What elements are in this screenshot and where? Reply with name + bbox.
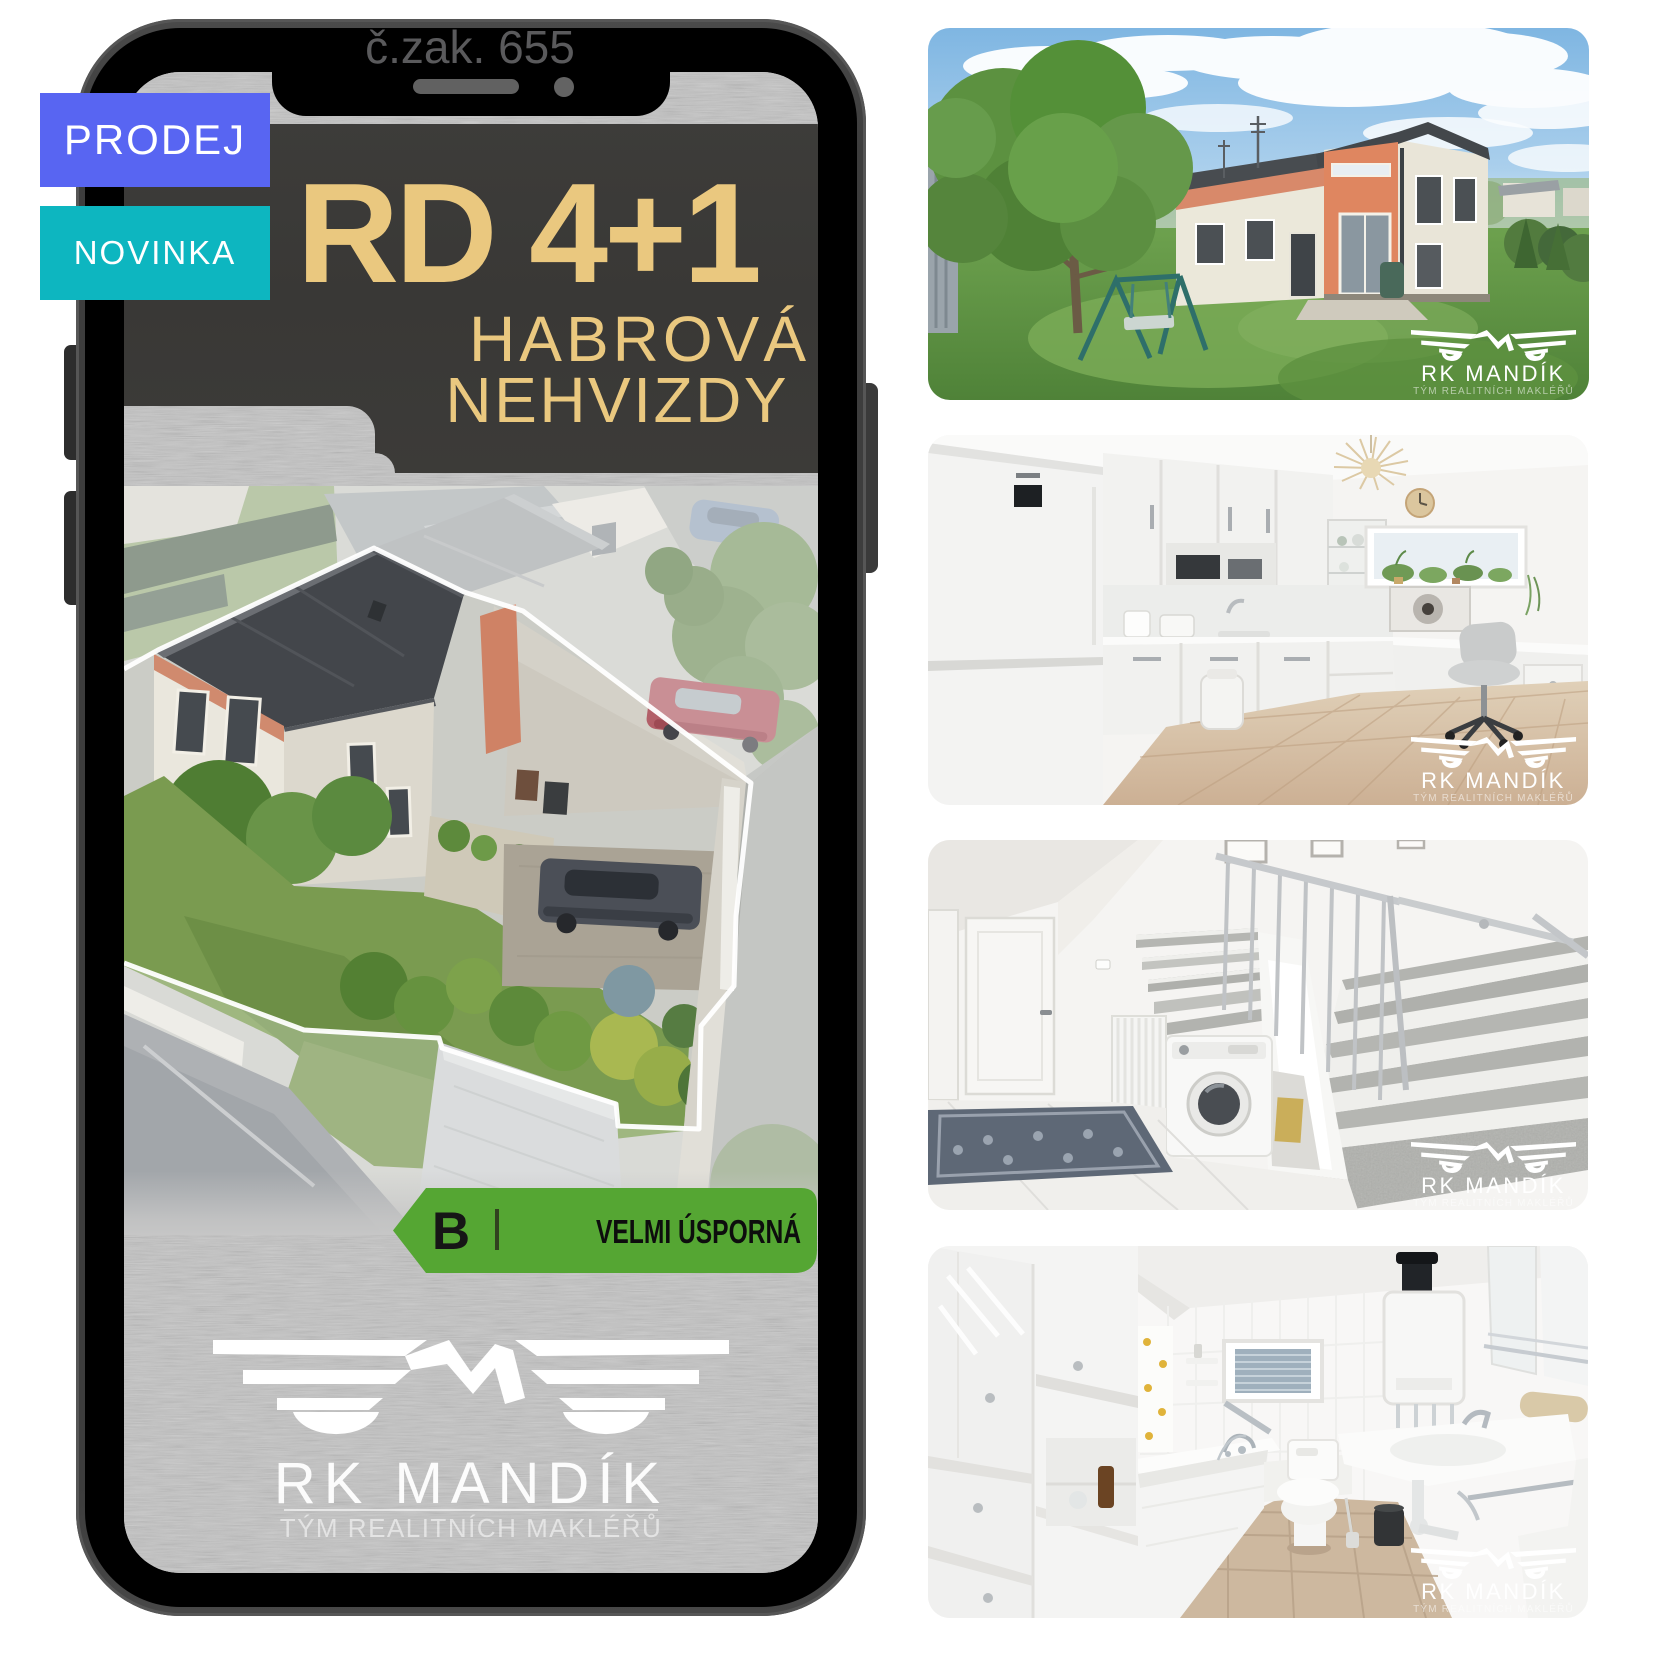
svg-text:B: B: [432, 1202, 470, 1261]
svg-text:VELMI ÚSPORNÁ: VELMI ÚSPORNÁ: [596, 1213, 801, 1250]
